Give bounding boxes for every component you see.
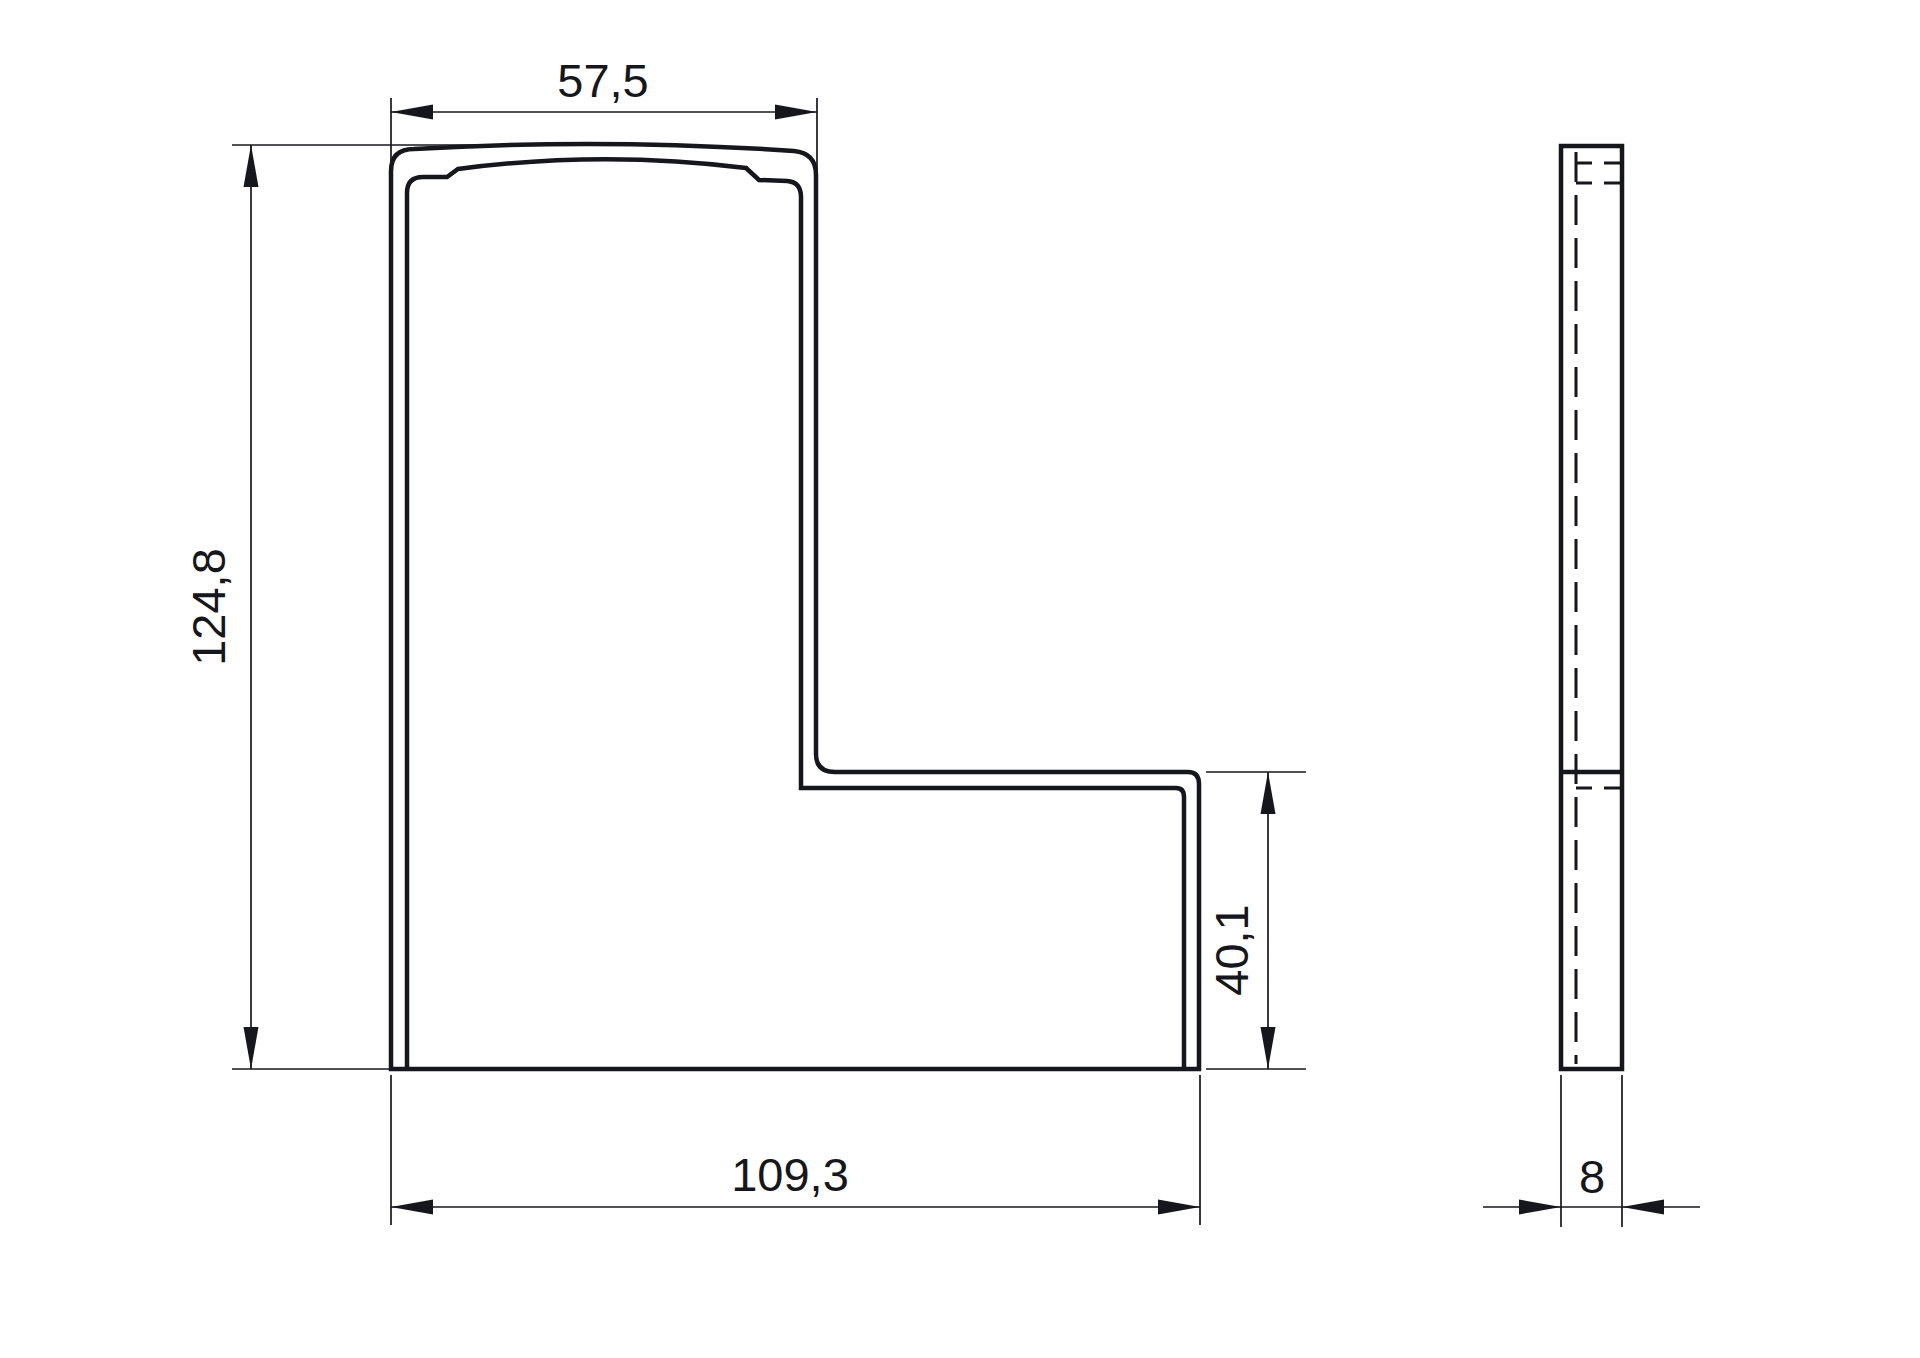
- dimension-total-height: 124,8: [182, 145, 592, 1069]
- dim-label-thickness: 8: [1579, 1150, 1605, 1203]
- dim-label-total-height: 124,8: [182, 548, 235, 666]
- dimension-top-width: 57,5: [391, 54, 817, 171]
- arrowhead-up: [1261, 772, 1276, 814]
- arrowhead-right: [775, 105, 817, 120]
- dim-label-step-height: 40,1: [1205, 904, 1258, 995]
- side-view: [1561, 146, 1622, 1069]
- front-outer-contour: [391, 144, 1199, 1069]
- arrowhead-inward-left: [1622, 1200, 1664, 1215]
- dimension-thickness: 8: [1483, 1075, 1700, 1227]
- front-rim-edge: [407, 159, 1184, 1069]
- side-outline: [1561, 146, 1622, 1069]
- arrowhead-up: [244, 145, 259, 187]
- arrowhead-down: [1261, 1027, 1276, 1069]
- technical-drawing-canvas: 57,5 124,8 109,3 40,1 8: [0, 0, 1920, 1358]
- arrowhead-left: [391, 1200, 433, 1215]
- arrowhead-left: [391, 105, 433, 120]
- dim-label-total-width: 109,3: [731, 1148, 849, 1201]
- arrowhead-inward-right: [1519, 1200, 1561, 1215]
- arrowhead-down: [244, 1027, 259, 1069]
- drawing-sheet: 57,5 124,8 109,3 40,1 8: [0, 0, 1920, 1358]
- front-view: [391, 144, 1199, 1069]
- dimension-step-height: 40,1: [1205, 772, 1306, 1069]
- dimension-total-width: 109,3: [391, 1075, 1200, 1225]
- arrowhead-right: [1158, 1200, 1200, 1215]
- dim-label-top-width: 57,5: [557, 54, 648, 107]
